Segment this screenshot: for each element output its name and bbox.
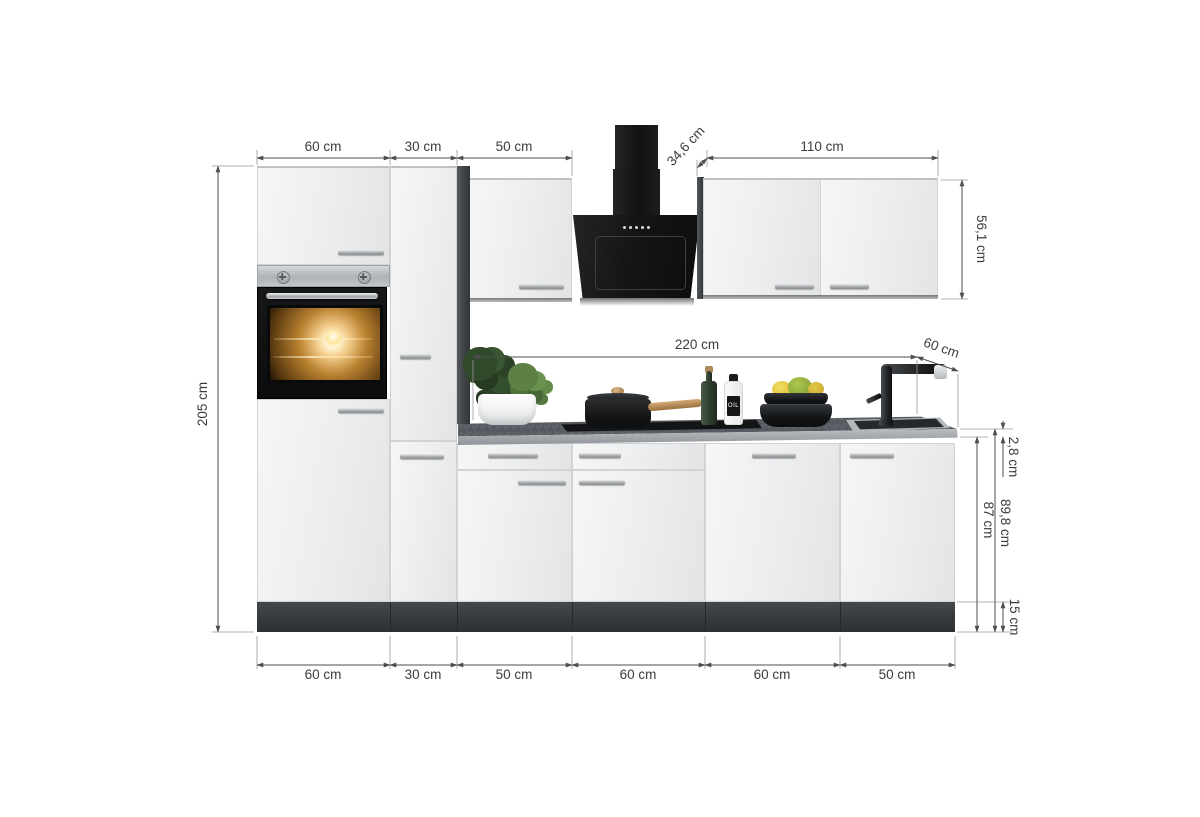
worktop-layer xyxy=(0,0,1200,817)
product-dimension-diagram: OIL xyxy=(0,0,1200,817)
